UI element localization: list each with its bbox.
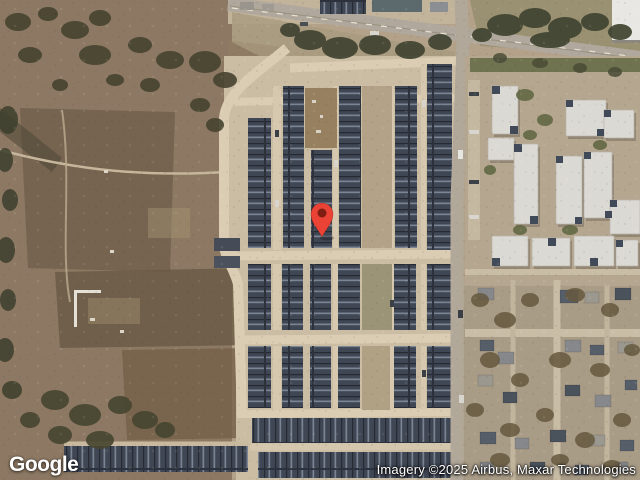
pin-hole (318, 209, 327, 218)
google-logo[interactable]: Google (9, 453, 78, 477)
attribution-text: Imagery ©2025 Airbus, Maxar Technologies (377, 462, 636, 477)
texture-overlay (0, 0, 640, 480)
satellite-imagery (0, 0, 640, 480)
map-viewport[interactable]: Google Imagery ©2025 Airbus, Maxar Techn… (0, 0, 640, 480)
